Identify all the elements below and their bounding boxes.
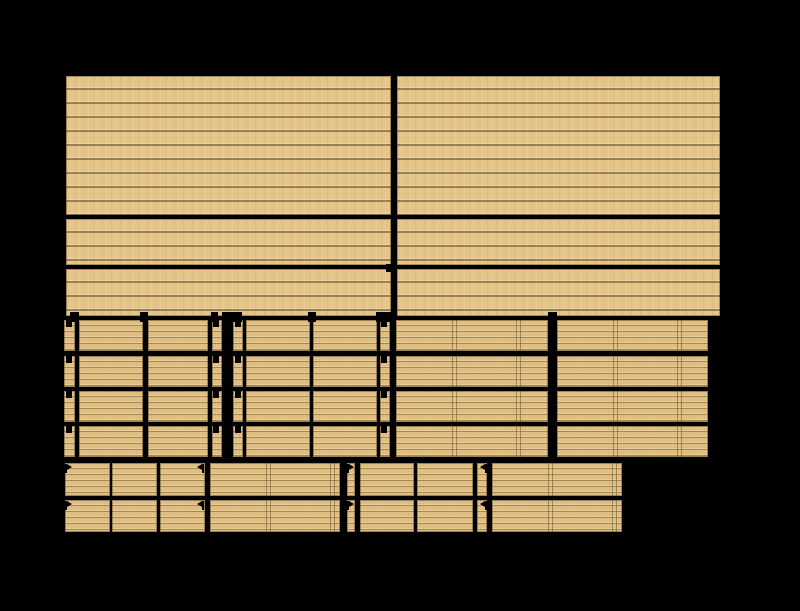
slot-mark	[235, 356, 241, 363]
arrow-stem	[485, 464, 487, 473]
top-sheet-lower-left	[66, 269, 391, 316]
slot-mark	[381, 356, 387, 363]
orientation-arrow-left-icon	[480, 464, 487, 473]
arrow-head	[197, 501, 202, 507]
wood-parts-sheet	[0, 0, 800, 611]
arrow-stem	[202, 501, 204, 510]
bottom-small-left-grid-cell-r1-c2	[112, 463, 157, 496]
middle-right-grid-cell-r2-c1	[396, 356, 548, 387]
middle-left-grid-cell-r3-c7	[313, 391, 377, 422]
middle-right-grid-cell-r3-c1	[396, 391, 548, 422]
orientation-arrow-right-icon	[347, 501, 354, 510]
middle-right-grid-cell-r4-c1	[396, 426, 548, 457]
top-sheet-upper-right	[397, 76, 720, 215]
middle-right-grid-cell-r1-c2	[557, 320, 708, 351]
bottom-wide-left-grid-cell-r1-c1	[210, 463, 340, 496]
top-sheet-mid-left	[66, 219, 391, 265]
bottom-small-mid-grid-cell-r2-c3	[417, 500, 473, 532]
slot-mark	[213, 356, 219, 363]
arrow-head	[480, 464, 485, 470]
middle-right-grid-cell-r1-c1	[396, 320, 548, 351]
arrow-head	[67, 501, 72, 507]
orientation-arrow-left-icon	[197, 501, 204, 510]
bottom-wide-right-grid-cell-r2-c1	[492, 500, 622, 532]
middle-left-grid-cell-r3-c2	[79, 391, 143, 422]
middle-left-grid-cell-r4-c6	[246, 426, 310, 457]
middle-left-grid-cell-r1-c7	[313, 320, 377, 351]
slot-mark	[66, 391, 72, 398]
orientation-arrow-left-icon	[197, 464, 204, 473]
middle-left-grid-cell-r2-c6	[246, 356, 310, 387]
middle-left-grid-cell-r4-c7	[313, 426, 377, 457]
slot-mark	[213, 426, 219, 433]
orientation-arrow-right-icon	[65, 501, 72, 510]
slot-mark	[66, 426, 72, 433]
orientation-arrow-left-icon	[480, 501, 487, 510]
top-sheet-upper-left	[66, 76, 391, 215]
slot-mark	[381, 391, 387, 398]
middle-left-grid-cell-r2-c7	[313, 356, 377, 387]
arrow-head	[197, 464, 202, 470]
middle-left-grid-cell-r2-c3	[148, 356, 208, 387]
middle-left-grid-cell-r4-c2	[79, 426, 143, 457]
slot-mark	[381, 426, 387, 433]
top-sheet-mid-right	[397, 219, 720, 265]
middle-right-grid-cell-r2-c2	[557, 356, 708, 387]
arrow-head	[480, 501, 485, 507]
tab-notch	[548, 312, 557, 322]
middle-right-grid-cell-r3-c2	[557, 391, 708, 422]
tab-notch	[211, 312, 218, 322]
bottom-small-mid-grid-cell-r1-c2	[360, 463, 414, 496]
middle-left-grid-cell-r4-c3	[148, 426, 208, 457]
tab-notch	[308, 312, 316, 322]
arrow-stem	[485, 501, 487, 510]
slot-mark	[235, 426, 241, 433]
orientation-arrow-right-icon	[347, 464, 354, 473]
middle-left-grid-cell-r2-c2	[79, 356, 143, 387]
arrow-stem	[202, 464, 204, 473]
tab-notch	[376, 312, 393, 322]
middle-left-grid-cell-r1-c6	[246, 320, 310, 351]
middle-left-grid-cell-r3-c6	[246, 391, 310, 422]
arrow-head	[349, 464, 354, 470]
middle-left-grid-cell-r1-c2	[79, 320, 143, 351]
slot-mark	[386, 264, 393, 272]
bottom-small-mid-grid-cell-r2-c2	[360, 500, 414, 532]
tab-notch	[140, 312, 148, 322]
bottom-wide-right-grid-cell-r1-c1	[492, 463, 622, 496]
middle-left-grid-cell-r3-c3	[148, 391, 208, 422]
tab-notch	[222, 312, 242, 322]
arrow-head	[349, 501, 354, 507]
top-sheet-lower-right	[397, 269, 720, 316]
middle-right-grid-cell-r4-c2	[557, 426, 708, 457]
orientation-arrow-right-icon	[65, 464, 72, 473]
bottom-small-left-grid-cell-r2-c2	[112, 500, 157, 532]
middle-left-grid-cell-r1-c3	[148, 320, 208, 351]
slot-mark	[213, 391, 219, 398]
arrow-head	[67, 464, 72, 470]
slot-mark	[66, 356, 72, 363]
slot-mark	[235, 391, 241, 398]
tab-notch	[70, 312, 79, 322]
bottom-small-mid-grid-cell-r1-c3	[417, 463, 473, 496]
bottom-wide-left-grid-cell-r2-c1	[210, 500, 340, 532]
